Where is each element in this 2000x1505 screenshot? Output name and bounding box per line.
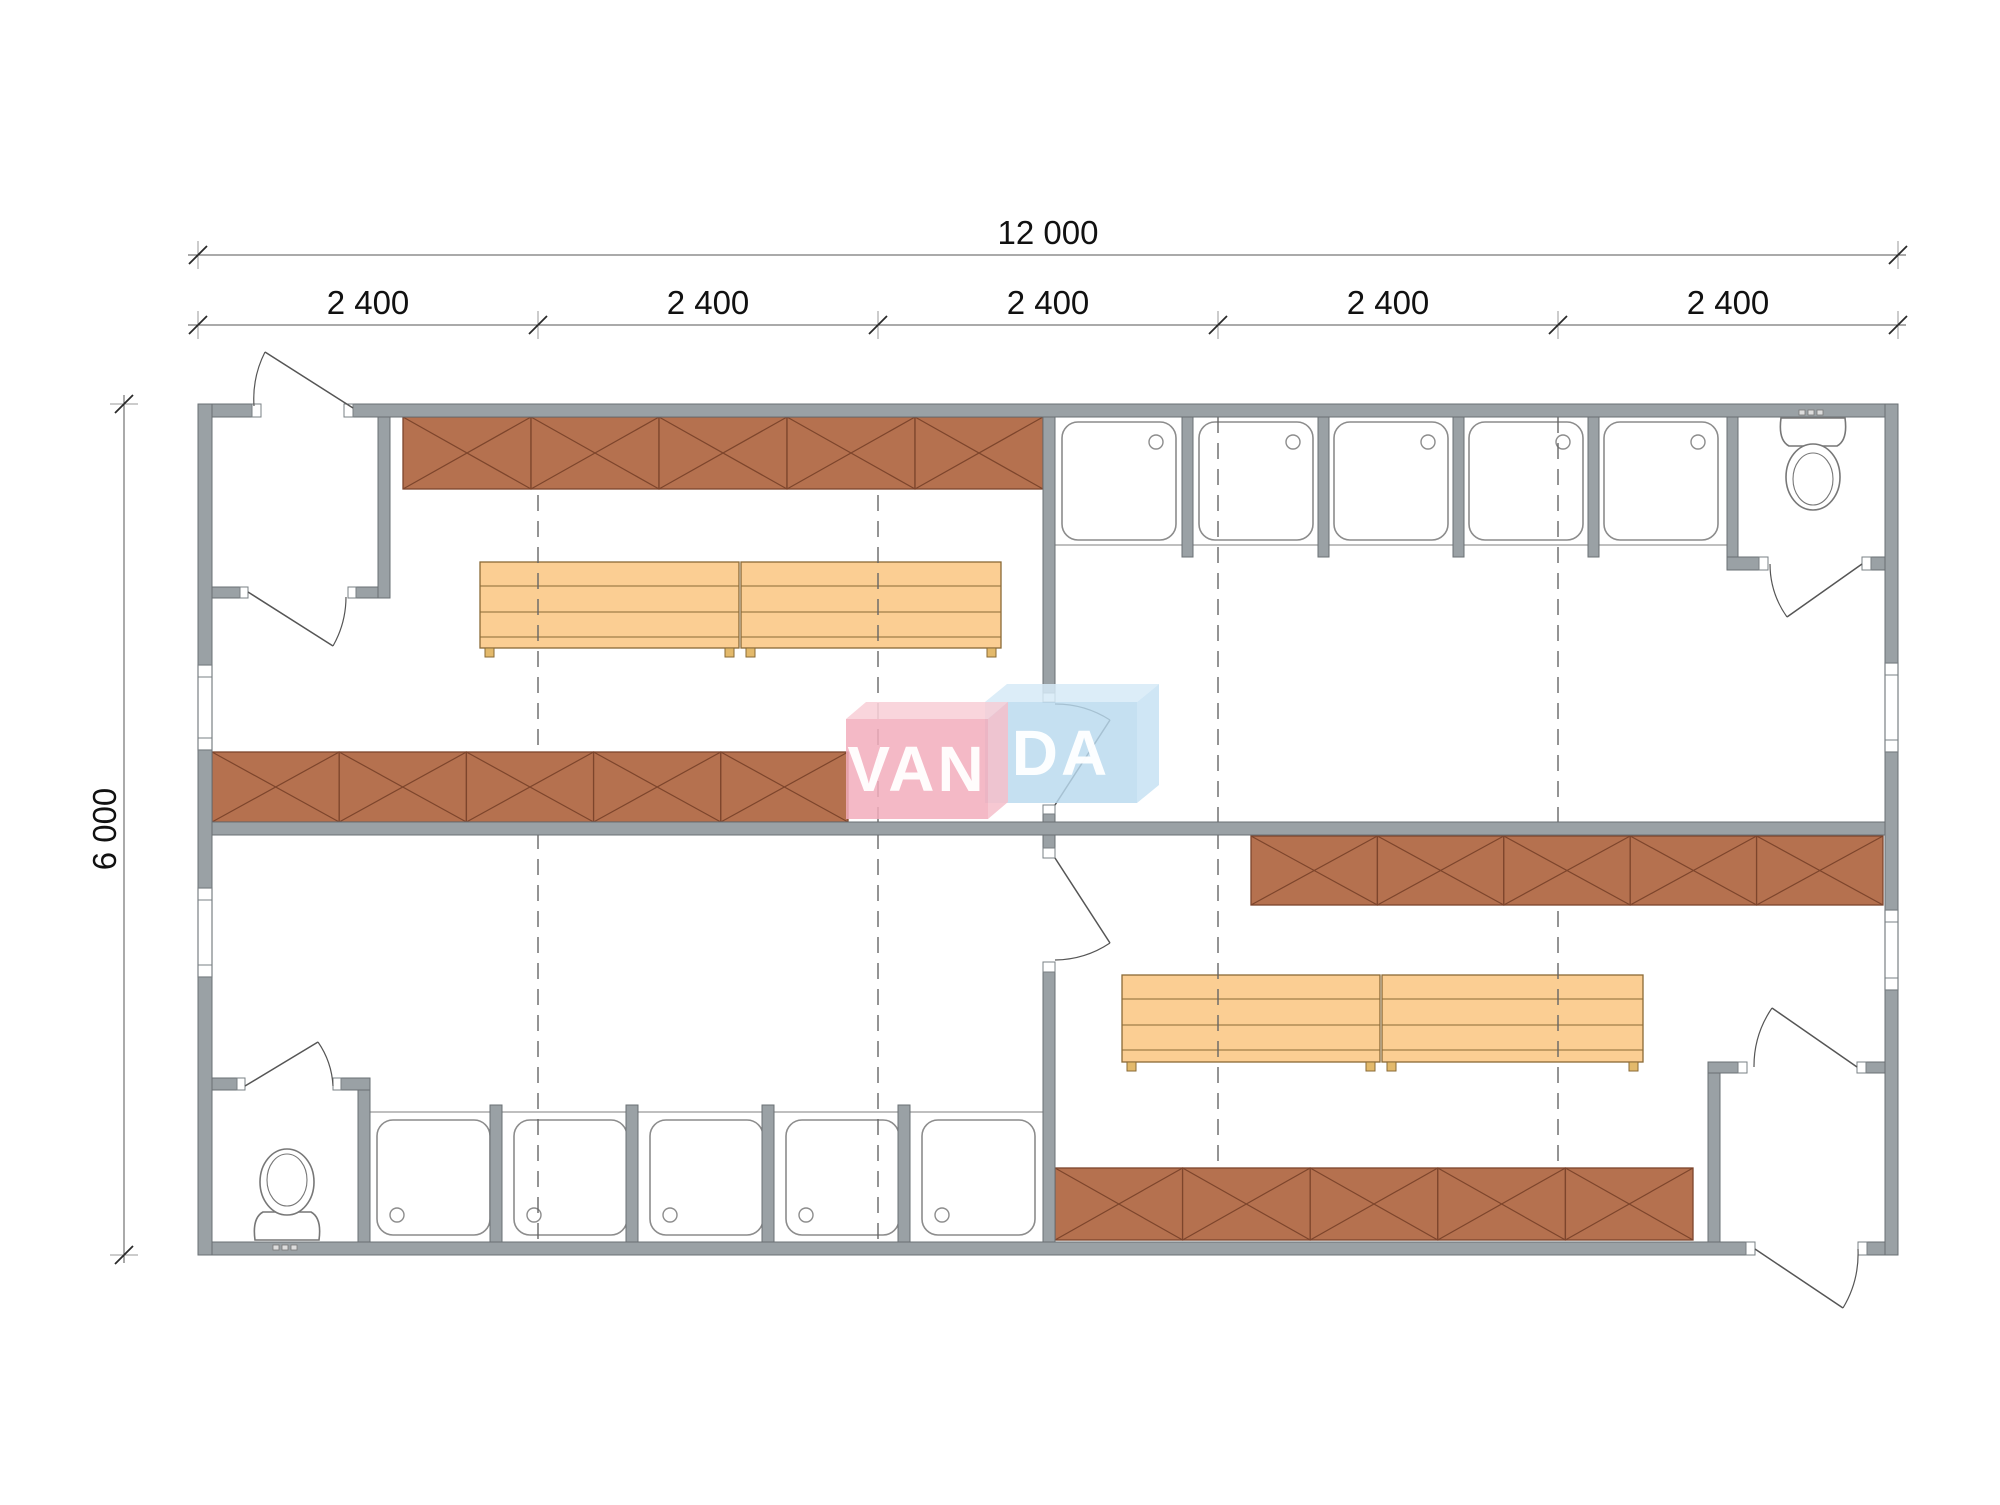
door-jamb <box>1043 805 1055 814</box>
wall-segment <box>626 1105 638 1242</box>
toilet-flush-mark <box>1799 410 1805 415</box>
door-jamb <box>1857 1062 1866 1073</box>
door-arc <box>1843 1249 1858 1308</box>
door-jamb <box>252 404 261 417</box>
door-arc <box>254 352 265 406</box>
bench-top <box>1122 975 1380 1062</box>
window <box>1885 663 1898 752</box>
bench-foot <box>485 648 494 657</box>
dimension-label-module-2: 2 400 <box>667 284 750 321</box>
door-leaf <box>1755 1249 1843 1308</box>
toilet-flush-mark <box>1808 410 1814 415</box>
door-leaf <box>245 1042 318 1086</box>
door-jamb <box>1738 1062 1747 1073</box>
bench-foot <box>1387 1062 1396 1071</box>
shower-stall <box>1062 422 1176 540</box>
door-arc <box>1754 1008 1772 1067</box>
toilet-tank <box>254 1212 319 1240</box>
drain-icon <box>1149 435 1163 449</box>
wall-segment <box>1885 990 1898 1255</box>
dimension-label-height: 6 000 <box>86 788 123 871</box>
door-jamb <box>333 1078 341 1090</box>
wall-segment <box>358 1090 370 1242</box>
door-leaf <box>1055 720 1110 805</box>
dimension-label-module-5: 2 400 <box>1687 284 1770 321</box>
drain-icon <box>1691 435 1705 449</box>
wall-segment <box>1182 417 1193 557</box>
locker-cabinet <box>403 417 1043 489</box>
dimension-label-module-1: 2 400 <box>327 284 410 321</box>
door-swing <box>245 1042 333 1086</box>
door-swing <box>1770 564 1862 617</box>
door-jamb <box>348 587 356 598</box>
window <box>198 665 212 750</box>
drain-icon <box>935 1208 949 1222</box>
door-jamb <box>237 1078 245 1090</box>
wall-segment <box>1885 404 1898 663</box>
door-swing <box>1055 858 1110 960</box>
door-leaf <box>265 352 353 408</box>
door-swing <box>248 592 346 646</box>
door-jamb <box>1043 693 1055 702</box>
toilet-flush-mark <box>282 1245 288 1250</box>
locker-cabinet <box>1055 1168 1693 1240</box>
wall-segment <box>356 587 378 598</box>
shower-row <box>370 1112 1043 1235</box>
wall-segment <box>212 1078 238 1090</box>
door-leaf <box>1055 858 1110 943</box>
door-leaf <box>1772 1008 1857 1067</box>
window-opening <box>1885 663 1898 752</box>
toilet-flush-mark <box>291 1245 297 1250</box>
door-jamb <box>1043 962 1055 972</box>
wall-segment <box>898 1105 910 1242</box>
shower-stall <box>922 1120 1035 1235</box>
bench-foot <box>1629 1062 1638 1071</box>
window <box>1885 910 1898 990</box>
wall-segment <box>198 404 212 665</box>
bench <box>1122 975 1380 1071</box>
drain-icon <box>390 1208 404 1222</box>
shower-stall <box>377 1120 490 1235</box>
wall-segment <box>1318 417 1329 557</box>
wall-segment <box>1043 972 1055 1242</box>
drain-icon <box>663 1208 677 1222</box>
wall-segment <box>198 977 212 1255</box>
wall-segment <box>353 404 1898 417</box>
door-jamb <box>1862 557 1871 570</box>
locker-cabinet <box>1251 836 1883 905</box>
bench <box>741 562 1001 657</box>
window-opening <box>198 665 212 750</box>
bench-foot <box>1127 1062 1136 1071</box>
door-swing <box>254 352 353 408</box>
toilet-flush-mark <box>1817 410 1823 415</box>
floor-plan: 12 000 2 400 2 400 2 400 2 400 2 400 6 0… <box>0 0 2000 1505</box>
toilet-bowl <box>260 1149 314 1215</box>
shower-stall <box>1469 422 1583 540</box>
wall-segment <box>762 1105 774 1242</box>
shower-stall <box>1604 422 1718 540</box>
toilet-tank <box>1780 418 1845 446</box>
bench <box>480 562 739 657</box>
wall-segment <box>198 1242 1755 1255</box>
plan-geometry <box>110 241 1907 1308</box>
bench-foot <box>746 648 755 657</box>
bench-foot <box>725 648 734 657</box>
bench-top <box>741 562 1001 648</box>
wall-segment <box>378 417 390 598</box>
dimension-label-module-4: 2 400 <box>1347 284 1430 321</box>
door-jamb <box>1043 848 1055 858</box>
wall-segment <box>212 822 1885 835</box>
wall-segment <box>1885 752 1898 910</box>
door-arc <box>333 597 346 646</box>
door-jamb <box>1759 557 1768 570</box>
door-jamb <box>240 587 248 598</box>
drain-icon <box>1421 435 1435 449</box>
wall-segment <box>212 587 240 598</box>
door-arc <box>318 1042 333 1086</box>
wall-segment <box>198 750 212 888</box>
dimension-label-module-3: 2 400 <box>1007 284 1090 321</box>
door-swing <box>1755 1249 1858 1308</box>
wall-segment <box>490 1105 502 1242</box>
wall-segment <box>1043 417 1055 702</box>
window-opening <box>198 888 212 977</box>
shower-stall <box>786 1120 899 1235</box>
door-arc <box>1055 704 1110 720</box>
dimension-label-total-width: 12 000 <box>998 214 1099 251</box>
shower-stall <box>1334 422 1448 540</box>
door-swing <box>1754 1008 1857 1067</box>
door-leaf <box>248 592 333 646</box>
door-jamb <box>1746 1242 1755 1255</box>
wall-segment <box>1453 417 1464 557</box>
wall-segment <box>341 1078 370 1090</box>
shower-stall <box>514 1120 627 1235</box>
window <box>198 888 212 977</box>
wall-segment <box>1708 1073 1720 1242</box>
shower-stall <box>1199 422 1313 540</box>
door-leaf <box>1787 564 1862 617</box>
locker-cabinet <box>212 752 848 822</box>
bench-foot <box>987 648 996 657</box>
wall-segment <box>1043 835 1055 848</box>
shower-stall <box>650 1120 763 1235</box>
door-arc <box>1770 564 1787 617</box>
toilet-bowl <box>1786 444 1840 510</box>
door-jamb <box>1858 1242 1867 1255</box>
bench <box>1382 975 1643 1071</box>
door-arc <box>1055 943 1110 960</box>
drain-icon <box>527 1208 541 1222</box>
bench-top <box>1382 975 1643 1062</box>
toilet-flush-mark <box>273 1245 279 1250</box>
wall-segment <box>1588 417 1599 557</box>
bench-top <box>480 562 739 648</box>
toilet <box>1780 410 1845 510</box>
drain-icon <box>1286 435 1300 449</box>
wall-segment <box>1727 417 1738 570</box>
toilet <box>254 1149 319 1250</box>
shower-row <box>1055 422 1727 545</box>
bench-foot <box>1366 1062 1375 1071</box>
drain-icon <box>799 1208 813 1222</box>
door-swing <box>1055 704 1110 805</box>
